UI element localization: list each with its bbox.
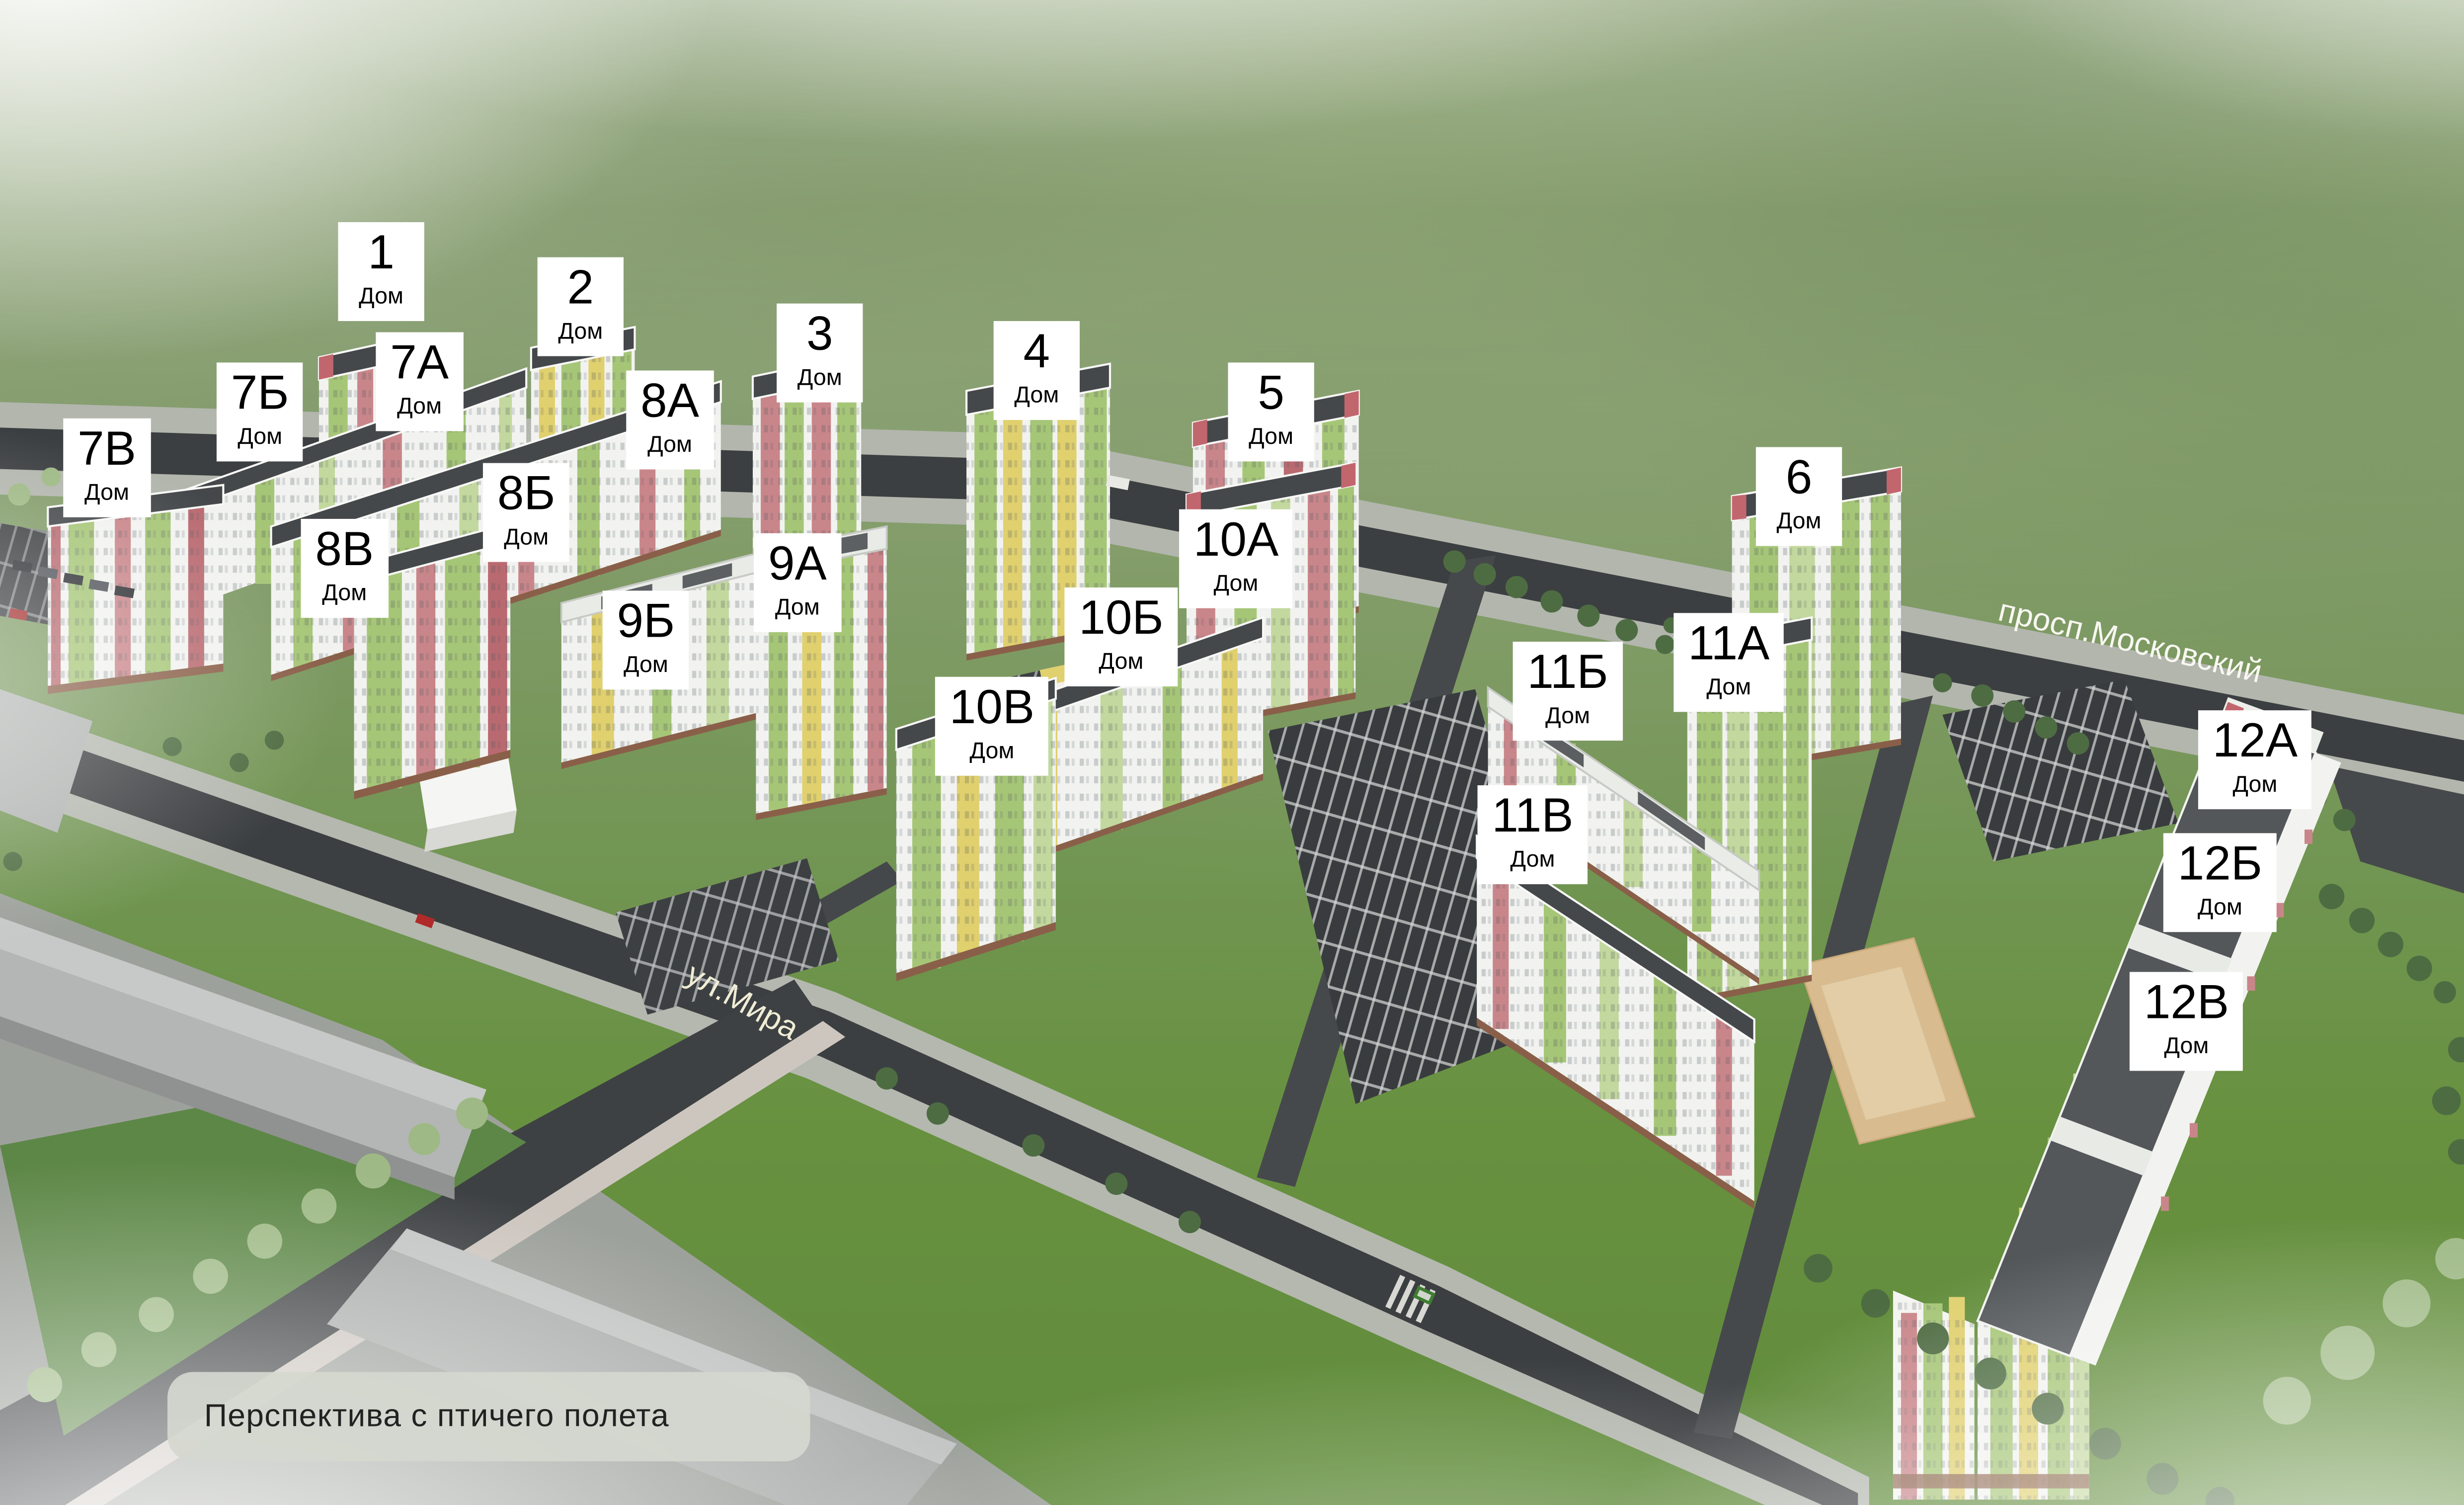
building-label-6: 6 Дом bbox=[1756, 447, 1842, 545]
building-number: 12А bbox=[2213, 718, 2298, 766]
building-sublabel: Дом bbox=[1770, 511, 1828, 534]
building-label-11v: 11В Дом bbox=[1478, 785, 1588, 883]
building-label-4: 4 Дом bbox=[994, 321, 1080, 419]
building-number: 7В bbox=[78, 426, 136, 474]
building-number: 8А bbox=[640, 379, 699, 426]
building-sublabel: Дом bbox=[617, 655, 675, 678]
building-number: 7А bbox=[390, 340, 449, 388]
building-label-12a: 12А Дом bbox=[2198, 710, 2312, 808]
building-label-10a: 10А Дом bbox=[1179, 509, 1293, 607]
building-sublabel: Дом bbox=[1008, 385, 1066, 408]
building-sublabel: Дом bbox=[640, 434, 699, 458]
building-label-8a: 8А Дом bbox=[626, 370, 714, 468]
building-number: 12В bbox=[2144, 980, 2229, 1028]
building-number: 12Б bbox=[2178, 841, 2262, 889]
building-number: 11В bbox=[1492, 793, 1573, 841]
building-sublabel: Дом bbox=[2178, 897, 2262, 920]
building-number: 10Б bbox=[1079, 595, 1163, 643]
building-sublabel: Дом bbox=[768, 597, 827, 620]
building-sublabel: Дом bbox=[791, 367, 849, 391]
building-number: 6 bbox=[1770, 455, 1828, 503]
playground bbox=[1799, 938, 1975, 1144]
building-number: 5 bbox=[1242, 370, 1300, 418]
building-number: 8В bbox=[315, 527, 374, 575]
building-label-12v: 12В Дом bbox=[2130, 972, 2243, 1070]
caption-text: Перспектива с птичего полета bbox=[204, 1398, 669, 1435]
building-sublabel: Дом bbox=[1193, 573, 1278, 596]
building-sublabel: Дом bbox=[950, 741, 1034, 764]
building-number: 11А bbox=[1688, 621, 1769, 669]
building-sublabel: Дом bbox=[497, 527, 556, 550]
building-number: 4 bbox=[1008, 329, 1066, 377]
building-sublabel: Дом bbox=[1492, 849, 1573, 872]
building-label-9a: 9А Дом bbox=[754, 533, 841, 631]
building-sublabel: Дом bbox=[1527, 705, 1608, 729]
building-label-10b: 10Б Дом bbox=[1064, 587, 1178, 685]
building-sublabel: Дом bbox=[1079, 651, 1163, 674]
building-number: 9Б bbox=[617, 598, 675, 646]
masterplan-render: просп.Московский ул.Мира 1 Дом 2 Дом 3 Д… bbox=[0, 0, 2464, 1505]
building-sublabel: Дом bbox=[390, 396, 449, 419]
building-sublabel: Дом bbox=[1242, 426, 1300, 450]
caption-pill: Перспектива с птичего полета bbox=[167, 1372, 810, 1461]
building-sublabel: Дом bbox=[315, 583, 374, 606]
building-label-7b: 7Б Дом bbox=[217, 362, 304, 460]
building-label-11b: 11Б Дом bbox=[1513, 642, 1623, 740]
building-label-12b: 12Б Дом bbox=[2163, 833, 2277, 931]
building-sublabel: Дом bbox=[352, 286, 410, 309]
building-number: 1 bbox=[352, 230, 410, 278]
building-label-3: 3 Дом bbox=[777, 304, 863, 402]
building-number: 9А bbox=[768, 541, 827, 589]
building-number: 8Б bbox=[497, 471, 556, 519]
building-sublabel: Дом bbox=[2213, 774, 2298, 798]
building-number: 3 bbox=[791, 312, 849, 359]
building-label-1: 1 Дом bbox=[338, 222, 424, 320]
building-number: 10В bbox=[950, 685, 1034, 733]
building-label-5: 5 Дом bbox=[1228, 362, 1314, 460]
building-sublabel: Дом bbox=[2144, 1036, 2229, 1059]
building-sublabel: Дом bbox=[552, 321, 610, 344]
building-label-7a: 7А Дом bbox=[376, 332, 463, 430]
building-label-11a: 11А Дом bbox=[1673, 613, 1784, 711]
building-number: 2 bbox=[552, 265, 610, 313]
building-number: 7Б bbox=[231, 370, 289, 418]
building-label-8v: 8В Дом bbox=[301, 519, 389, 617]
building-number: 10А bbox=[1193, 517, 1278, 565]
building-label-7v: 7В Дом bbox=[63, 418, 151, 516]
building-sublabel: Дом bbox=[78, 482, 136, 505]
building-sublabel: Дом bbox=[1688, 677, 1769, 700]
building-label-9b: 9Б Дом bbox=[603, 590, 690, 688]
building-number: 11Б bbox=[1527, 650, 1608, 697]
building-label-10v: 10В Дом bbox=[935, 677, 1049, 775]
building-label-8b: 8Б Дом bbox=[483, 463, 570, 561]
building-sublabel: Дом bbox=[231, 426, 289, 450]
building-label-2: 2 Дом bbox=[538, 257, 624, 355]
